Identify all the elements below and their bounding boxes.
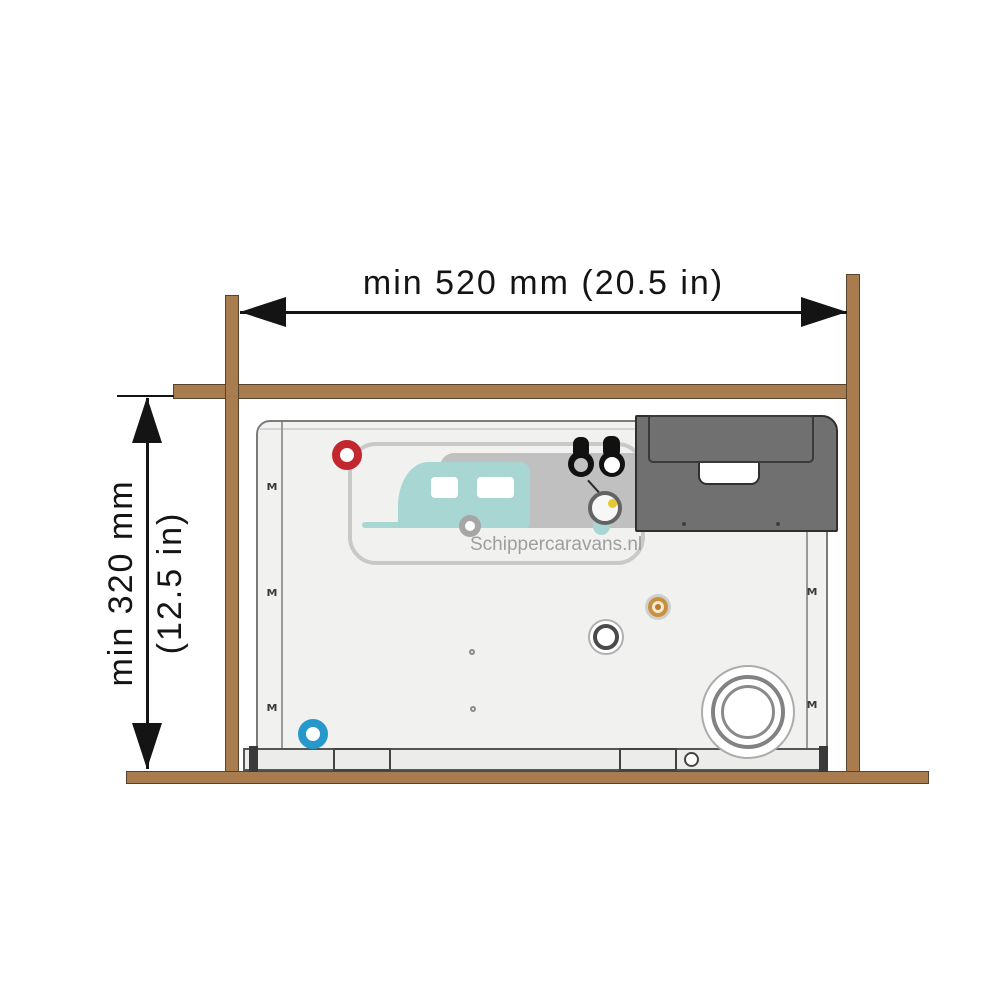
gas-connection-icon	[645, 594, 671, 620]
width-dimension-line	[240, 311, 847, 314]
height-dimension-label-in: (12.5 in)	[146, 353, 195, 813]
left-flange-line	[281, 422, 283, 748]
caravan-window	[431, 477, 458, 498]
cover-screw-dot	[776, 522, 780, 526]
screw-hole	[469, 649, 475, 655]
cable-grommets-icon	[566, 436, 626, 482]
mounting-clip-icon: M	[265, 702, 279, 715]
frame-right-post	[846, 274, 860, 772]
base-drain-hole	[684, 752, 699, 767]
cover-screw-dot	[682, 522, 686, 526]
cold-water-port-icon	[298, 719, 328, 749]
yellow-marker-dot	[608, 499, 617, 508]
gas-connection-center	[655, 604, 661, 610]
hot-water-port-icon	[332, 440, 362, 470]
base-corner-bracket	[819, 746, 828, 772]
caravan-window	[477, 477, 514, 498]
caravan-hitch	[362, 522, 404, 528]
base-corner-bracket	[249, 746, 258, 772]
base-bracket	[333, 748, 391, 771]
frame-top-beam	[173, 384, 860, 399]
flue-opening-inner	[721, 685, 775, 739]
drain-port-ring	[593, 624, 619, 650]
mounting-clip-icon: M	[805, 586, 819, 599]
screw-hole	[470, 706, 476, 712]
base-bracket	[619, 748, 677, 771]
mounting-clip-icon: M	[265, 587, 279, 600]
frame-left-post	[225, 295, 239, 772]
frame-floor	[126, 771, 929, 784]
electronics-cover	[635, 415, 838, 532]
heater-element-ring	[588, 491, 622, 525]
body-top-inner-line	[260, 428, 635, 430]
installation-diagram: min 520 mm (20.5 in) min 320 mm (12.5 in…	[0, 0, 1000, 1000]
height-dimension-label-mm: min 320 mm	[97, 353, 146, 813]
watermark-text: Schippercaravans.nl	[470, 534, 640, 556]
height-dimension-label: min 320 mm (12.5 in)	[97, 353, 195, 813]
electronics-cover-lid	[648, 415, 814, 463]
mounting-clip-icon: M	[805, 699, 819, 712]
cover-handle-recess	[698, 463, 760, 485]
width-dimension-label: min 520 mm (20.5 in)	[240, 263, 847, 303]
mounting-clip-icon: M	[265, 481, 279, 494]
